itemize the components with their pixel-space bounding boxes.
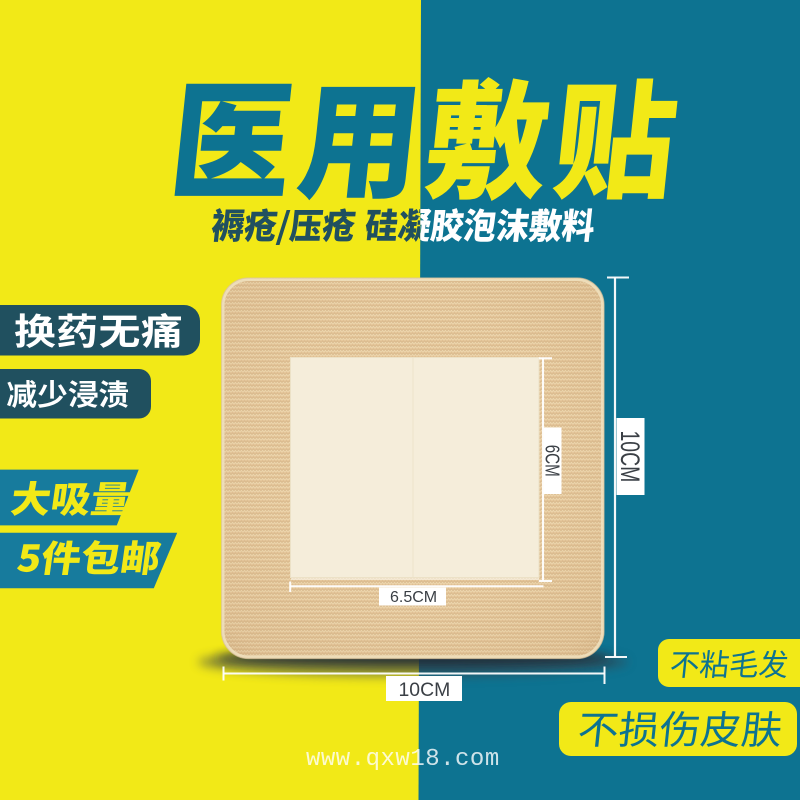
svg-text:6.5CM: 6.5CM (390, 589, 437, 606)
svg-text:6CM: 6CM (541, 445, 564, 477)
svg-text:10CM: 10CM (615, 431, 645, 483)
svg-text:www.qxw18.com: www.qxw18.com (306, 746, 500, 773)
svg-text:10CM: 10CM (399, 679, 451, 701)
